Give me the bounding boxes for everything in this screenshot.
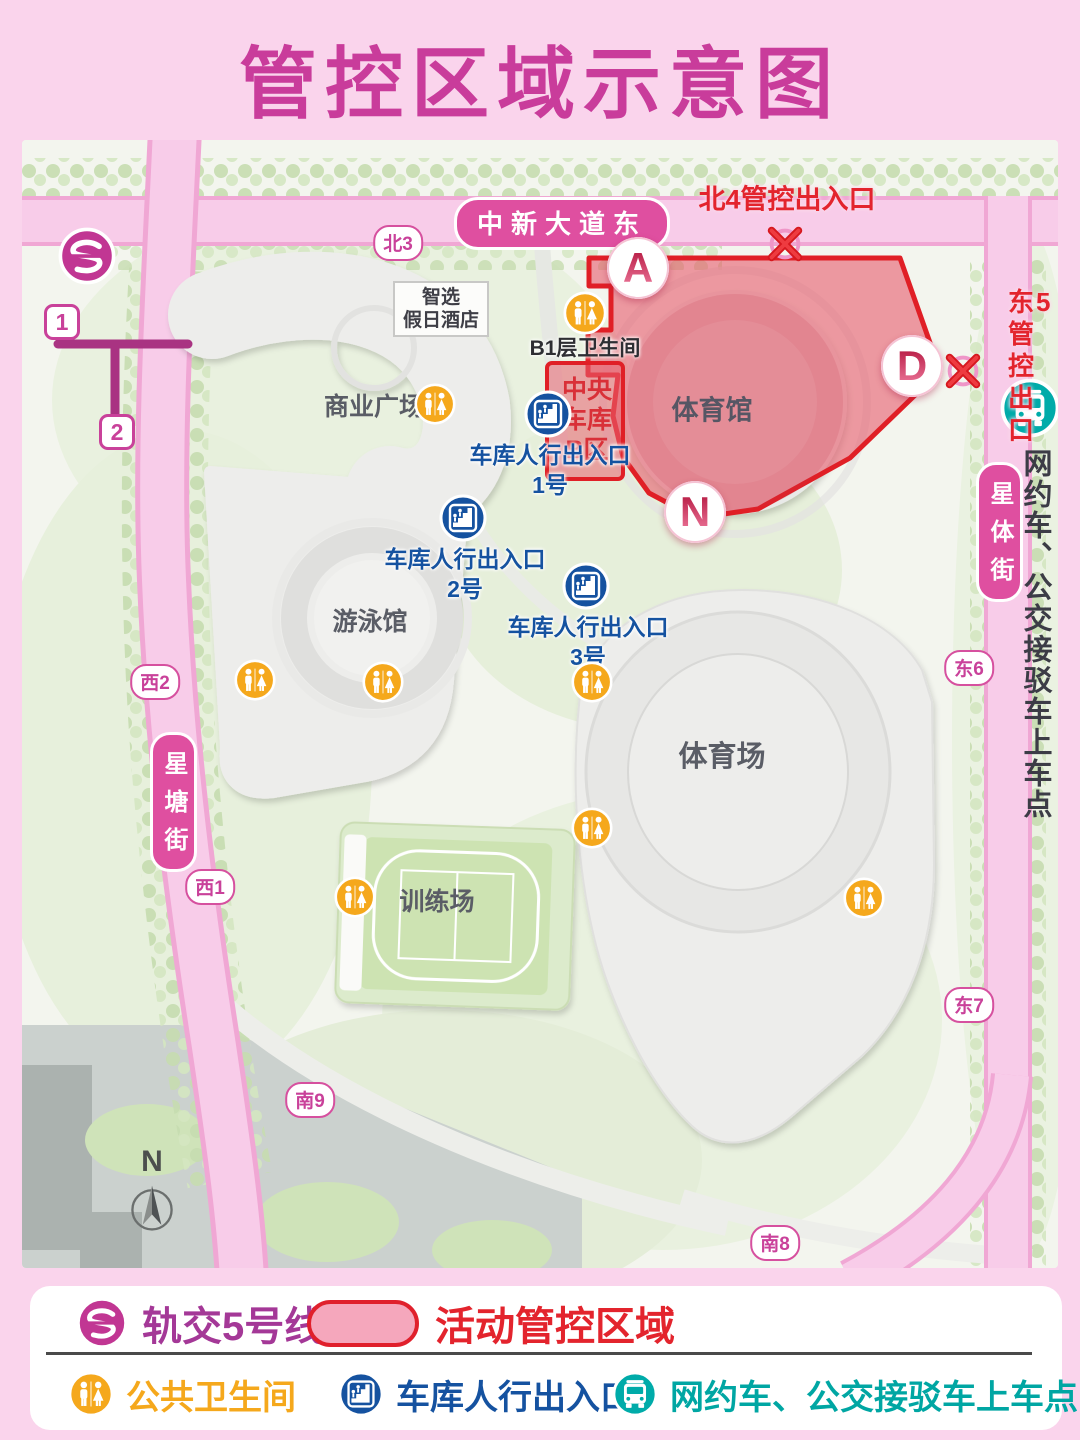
closed-gate-x-icon <box>940 348 986 394</box>
road-marker-east7: 东7 <box>944 987 994 1023</box>
restroom-icon <box>563 291 607 335</box>
restroom-icon <box>334 876 376 918</box>
compass-icon <box>124 1180 180 1236</box>
restroom-icon <box>571 661 613 703</box>
road-marker-east6: 东6 <box>944 650 994 686</box>
legend-zone-label: 活动管控区域 <box>435 1294 675 1352</box>
poster: { "title": "管控区域示意图", "colors": { "frame… <box>0 0 1080 1440</box>
gate-badge-a: A <box>607 237 669 299</box>
road-marker-north3: 北3 <box>373 225 423 261</box>
closed-gate-x-icon <box>762 221 808 267</box>
gate-letter-a: A <box>623 247 653 289</box>
restroom-icon <box>843 877 885 919</box>
control-zone-swatch <box>307 1300 419 1347</box>
road-marker-west2: 西2 <box>130 664 180 700</box>
road-marker-south9: 南9 <box>285 1082 335 1118</box>
road-label-xingtang-street: 星塘街 <box>150 732 197 872</box>
road-marker-south8: 南8 <box>750 1225 800 1261</box>
legend-rail-label: 轨交5号线 <box>142 1294 324 1352</box>
legend-item-garage: 车库人行出入口 <box>338 1370 634 1418</box>
shuttle-bus-icon <box>612 1371 658 1417</box>
garage-entrance-icon <box>562 562 610 610</box>
pickup-point-label: 网约车、公交接驳车上车点 <box>1014 448 1056 820</box>
legend-item-rail: 轨交5号线 <box>76 1296 324 1350</box>
hotel-label: 智选 假日酒店 <box>393 281 489 337</box>
restroom-icon <box>414 383 456 425</box>
building-label-stadium: 体育场 <box>678 733 765 775</box>
garage-entrance-icon <box>338 1371 384 1417</box>
legend-item-restroom: 公共卫生间 <box>68 1370 296 1418</box>
east-exit-label: 东5 管控 出口 <box>1008 286 1058 446</box>
gate-badge-n: N <box>664 481 726 543</box>
map-base-artwork <box>22 140 1058 1268</box>
garage-entrance-2-label: 车库人行出入口 2号 <box>385 544 546 604</box>
legend-divider <box>46 1352 1032 1355</box>
legend-pickup-label: 网约车、公交接驳车上车点 <box>670 1370 1078 1419</box>
legend-item-pickup: 网约车、公交接驳车上车点 <box>612 1370 1078 1418</box>
building-label-training: 训练场 <box>399 882 474 918</box>
road-marker-west1: 西1 <box>185 869 235 905</box>
gate-badge-d: D <box>881 335 943 397</box>
garage-entrance-icon <box>524 390 572 438</box>
metro-exit-1: 1 <box>44 304 80 340</box>
gate-letter-n: N <box>680 491 710 533</box>
metro-line5-logo-icon <box>76 1297 128 1349</box>
compass-north-label: N <box>141 1145 163 1179</box>
building-label-gym: 体育馆 <box>672 389 753 428</box>
metro-line5-logo-icon <box>58 227 116 285</box>
garage-entrance-icon <box>439 494 487 542</box>
restroom-icon <box>571 807 613 849</box>
legend-garage-label: 车库人行出入口 <box>396 1370 634 1419</box>
legend-panel: 轨交5号线 活动管控区域 公共卫生间 车库人行出入口 网约车、公交接驳车上车点 <box>30 1286 1062 1430</box>
gate-letter-d: D <box>897 345 927 387</box>
b1-restroom-label: B1层卫生间 <box>530 332 641 362</box>
building-label-pool: 游泳馆 <box>332 602 407 638</box>
building-label-plaza: 商业广场 <box>324 387 424 423</box>
legend-item-zone: 活动管控区域 <box>307 1296 675 1350</box>
restroom-icon <box>234 659 276 701</box>
page-title: 管控区域示意图 <box>0 22 1080 134</box>
restroom-icon <box>68 1371 114 1417</box>
north-gate-label: 北4管控出入口 <box>698 178 875 217</box>
restroom-icon <box>362 661 404 703</box>
metro-exit-2: 2 <box>99 414 135 450</box>
map: 中新大道东 星塘街 星体街 北3 西2 西1 南9 南8 东6 东7 1 2 北… <box>22 140 1058 1268</box>
legend-restroom-label: 公共卫生间 <box>126 1370 296 1419</box>
garage-entrance-1-label: 车库人行出入口 1号 <box>470 440 631 500</box>
